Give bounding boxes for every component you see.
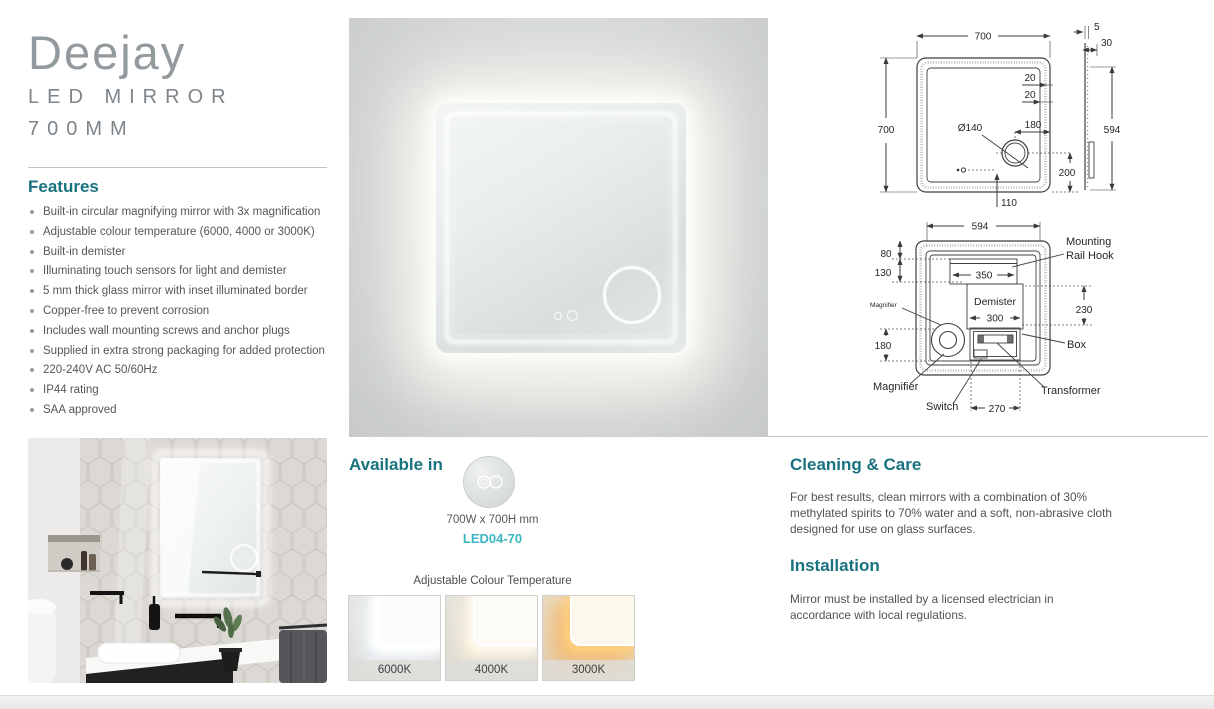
dim-inset-2: 20 [1024,90,1036,101]
touch-sensor-dot [554,312,562,320]
front-dimension-diagram: 700 700 20 20 Ø140 180 200 110 [856,15,1214,223]
swatch-mirror-corner [376,595,441,646]
rear-dimension-diagram: 594 80 130 Magnifier 180 350 Demister 30… [850,212,1214,424]
dim-sensor-bottom: 110 [1001,198,1017,209]
section-divider [768,436,1208,437]
product-type: LED MIRROR [28,86,328,109]
box-label: Box [1067,339,1086,351]
feature-item: Copper-free to prevent corrosion [28,305,338,318]
features-heading: Features [28,177,99,197]
dim-mag-bottom: 200 [1059,168,1076,179]
dim-mag-right: 180 [1025,120,1042,131]
swatch-label: 4000K [446,660,537,680]
cleaning-care-heading: Cleaning & Care [790,455,921,475]
dim-side-thickness: 5 [1094,22,1100,33]
model-code: LED04-70 [349,531,636,546]
dim-side-depth: 30 [1101,38,1113,49]
dim-rail-width: 350 [976,271,993,282]
dim-hook-top: 80 [880,249,892,260]
available-size: 700W x 700H mm [349,514,636,526]
dim-front-height: 700 [878,125,895,136]
touch-sensor-dot [567,310,578,321]
product-photo [349,18,768,437]
dim-demister-width: 300 [987,314,1004,325]
mounting-rail-hook-label: Mounting [1066,236,1111,248]
transformer-label: Transformer [1041,385,1101,397]
product-name: Deejay [28,28,328,77]
colour-temp-swatches: 6000K 4000K 3000K [348,595,638,681]
mounting-rail-hook-label: Rail Hook [1066,250,1114,262]
swatch-4000k: 4000K [445,595,538,681]
swatch-3000k: 3000K [542,595,635,681]
dim-rail-offset: 130 [875,268,892,279]
colour-temp-heading: Adjustable Colour Temperature [349,575,636,587]
cleaning-care-body: For best results, clean mirrors with a c… [790,489,1112,537]
lifestyle-photo [28,438,327,683]
feature-item: Illuminating touch sensors for light and… [28,265,338,278]
installation-heading: Installation [790,556,880,576]
dim-front-width: 700 [975,32,992,43]
feature-item: IP44 rating [28,384,338,397]
dim-side-height: 594 [1104,125,1121,136]
feature-item: Built-in circular magnifying mirror with… [28,206,338,219]
mirror-image [436,103,686,353]
spec-sheet-page: Deejay LED MIRROR 700MM Features Built-i… [0,0,1214,709]
swatch-label: 6000K [349,660,440,680]
magnifier-small-label: Magnifier [870,302,898,309]
demister-label: Demister [974,296,1017,308]
feature-item: Adjustable colour temperature (6000, 400… [28,226,338,239]
title-divider [28,167,327,168]
feature-item: Includes wall mounting screws and anchor… [28,325,338,338]
dim-bottom-span: 270 [989,404,1006,415]
dim-magnifier-diameter: Ø140 [958,123,983,134]
available-in-heading: Available in [349,455,443,475]
swatch-label: 3000K [543,660,634,680]
features-list: Built-in circular magnifying mirror with… [28,206,338,424]
product-size: 700MM [28,118,328,141]
title-block: Deejay LED MIRROR 700MM [28,28,328,141]
dim-rear-width: 594 [972,222,989,233]
feature-item: 5 mm thick glass mirror with inset illum… [28,285,338,298]
mirror-thumbnail-icon [463,456,515,508]
magnifier-circle [603,266,661,324]
feature-item: Supplied in extra strong packaging for a… [28,345,338,358]
feature-item: Built-in demister [28,246,338,259]
dim-inset-1: 20 [1024,73,1036,84]
footer-band [0,695,1214,709]
feature-item: SAA approved [28,404,338,417]
swatch-mirror-corner [570,595,635,646]
dim-mag-offset: 180 [875,341,892,352]
dim-right-span: 230 [1076,305,1093,316]
swatch-mirror-corner [473,595,538,646]
feature-item: 220-240V AC 50/60Hz [28,364,338,377]
swatch-6000k: 6000K [348,595,441,681]
installation-body: Mirror must be installed by a licensed e… [790,591,1112,623]
